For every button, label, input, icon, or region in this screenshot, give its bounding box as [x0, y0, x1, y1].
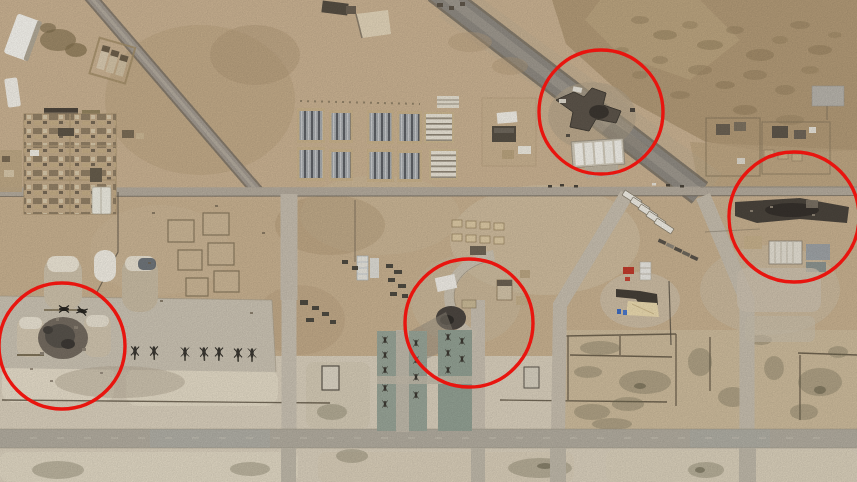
- photo-grain-overlay: [0, 0, 857, 482]
- satellite-scene: [0, 0, 857, 482]
- satellite-image: [0, 0, 857, 482]
